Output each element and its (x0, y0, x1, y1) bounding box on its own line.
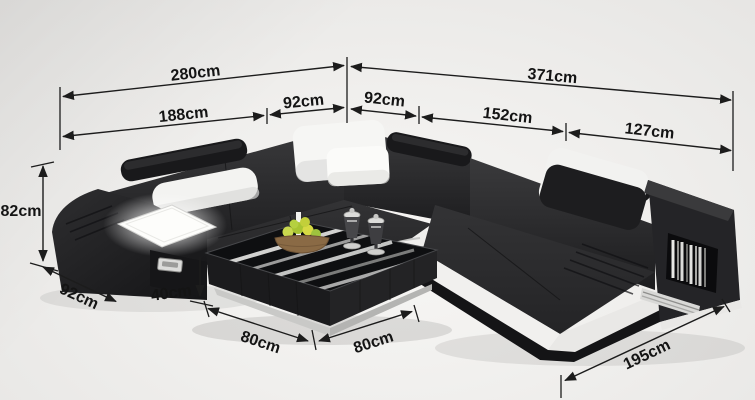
dim-label-188: 188cm (158, 104, 209, 126)
product-diagram: 280cm 371cm 188cm 92cm 92cm 152cm 127cm … (0, 0, 755, 400)
dim-label-92-left: 92cm (282, 92, 324, 113)
dim-label-371: 371cm (527, 66, 578, 87)
dim-label-280: 280cm (170, 62, 221, 84)
dim-label-92-right: 92cm (363, 89, 405, 110)
dim-line-92-right (351, 109, 416, 116)
drawer-handle (157, 258, 182, 272)
sofa-dimension-illustration: 280cm 371cm 188cm 92cm 92cm 152cm 127cm … (0, 0, 755, 400)
pillow-corner-small (326, 145, 390, 186)
sofa-illustration (40, 119, 745, 366)
tick-80b-end (414, 305, 419, 322)
dim-label-82: 82cm (1, 203, 42, 220)
